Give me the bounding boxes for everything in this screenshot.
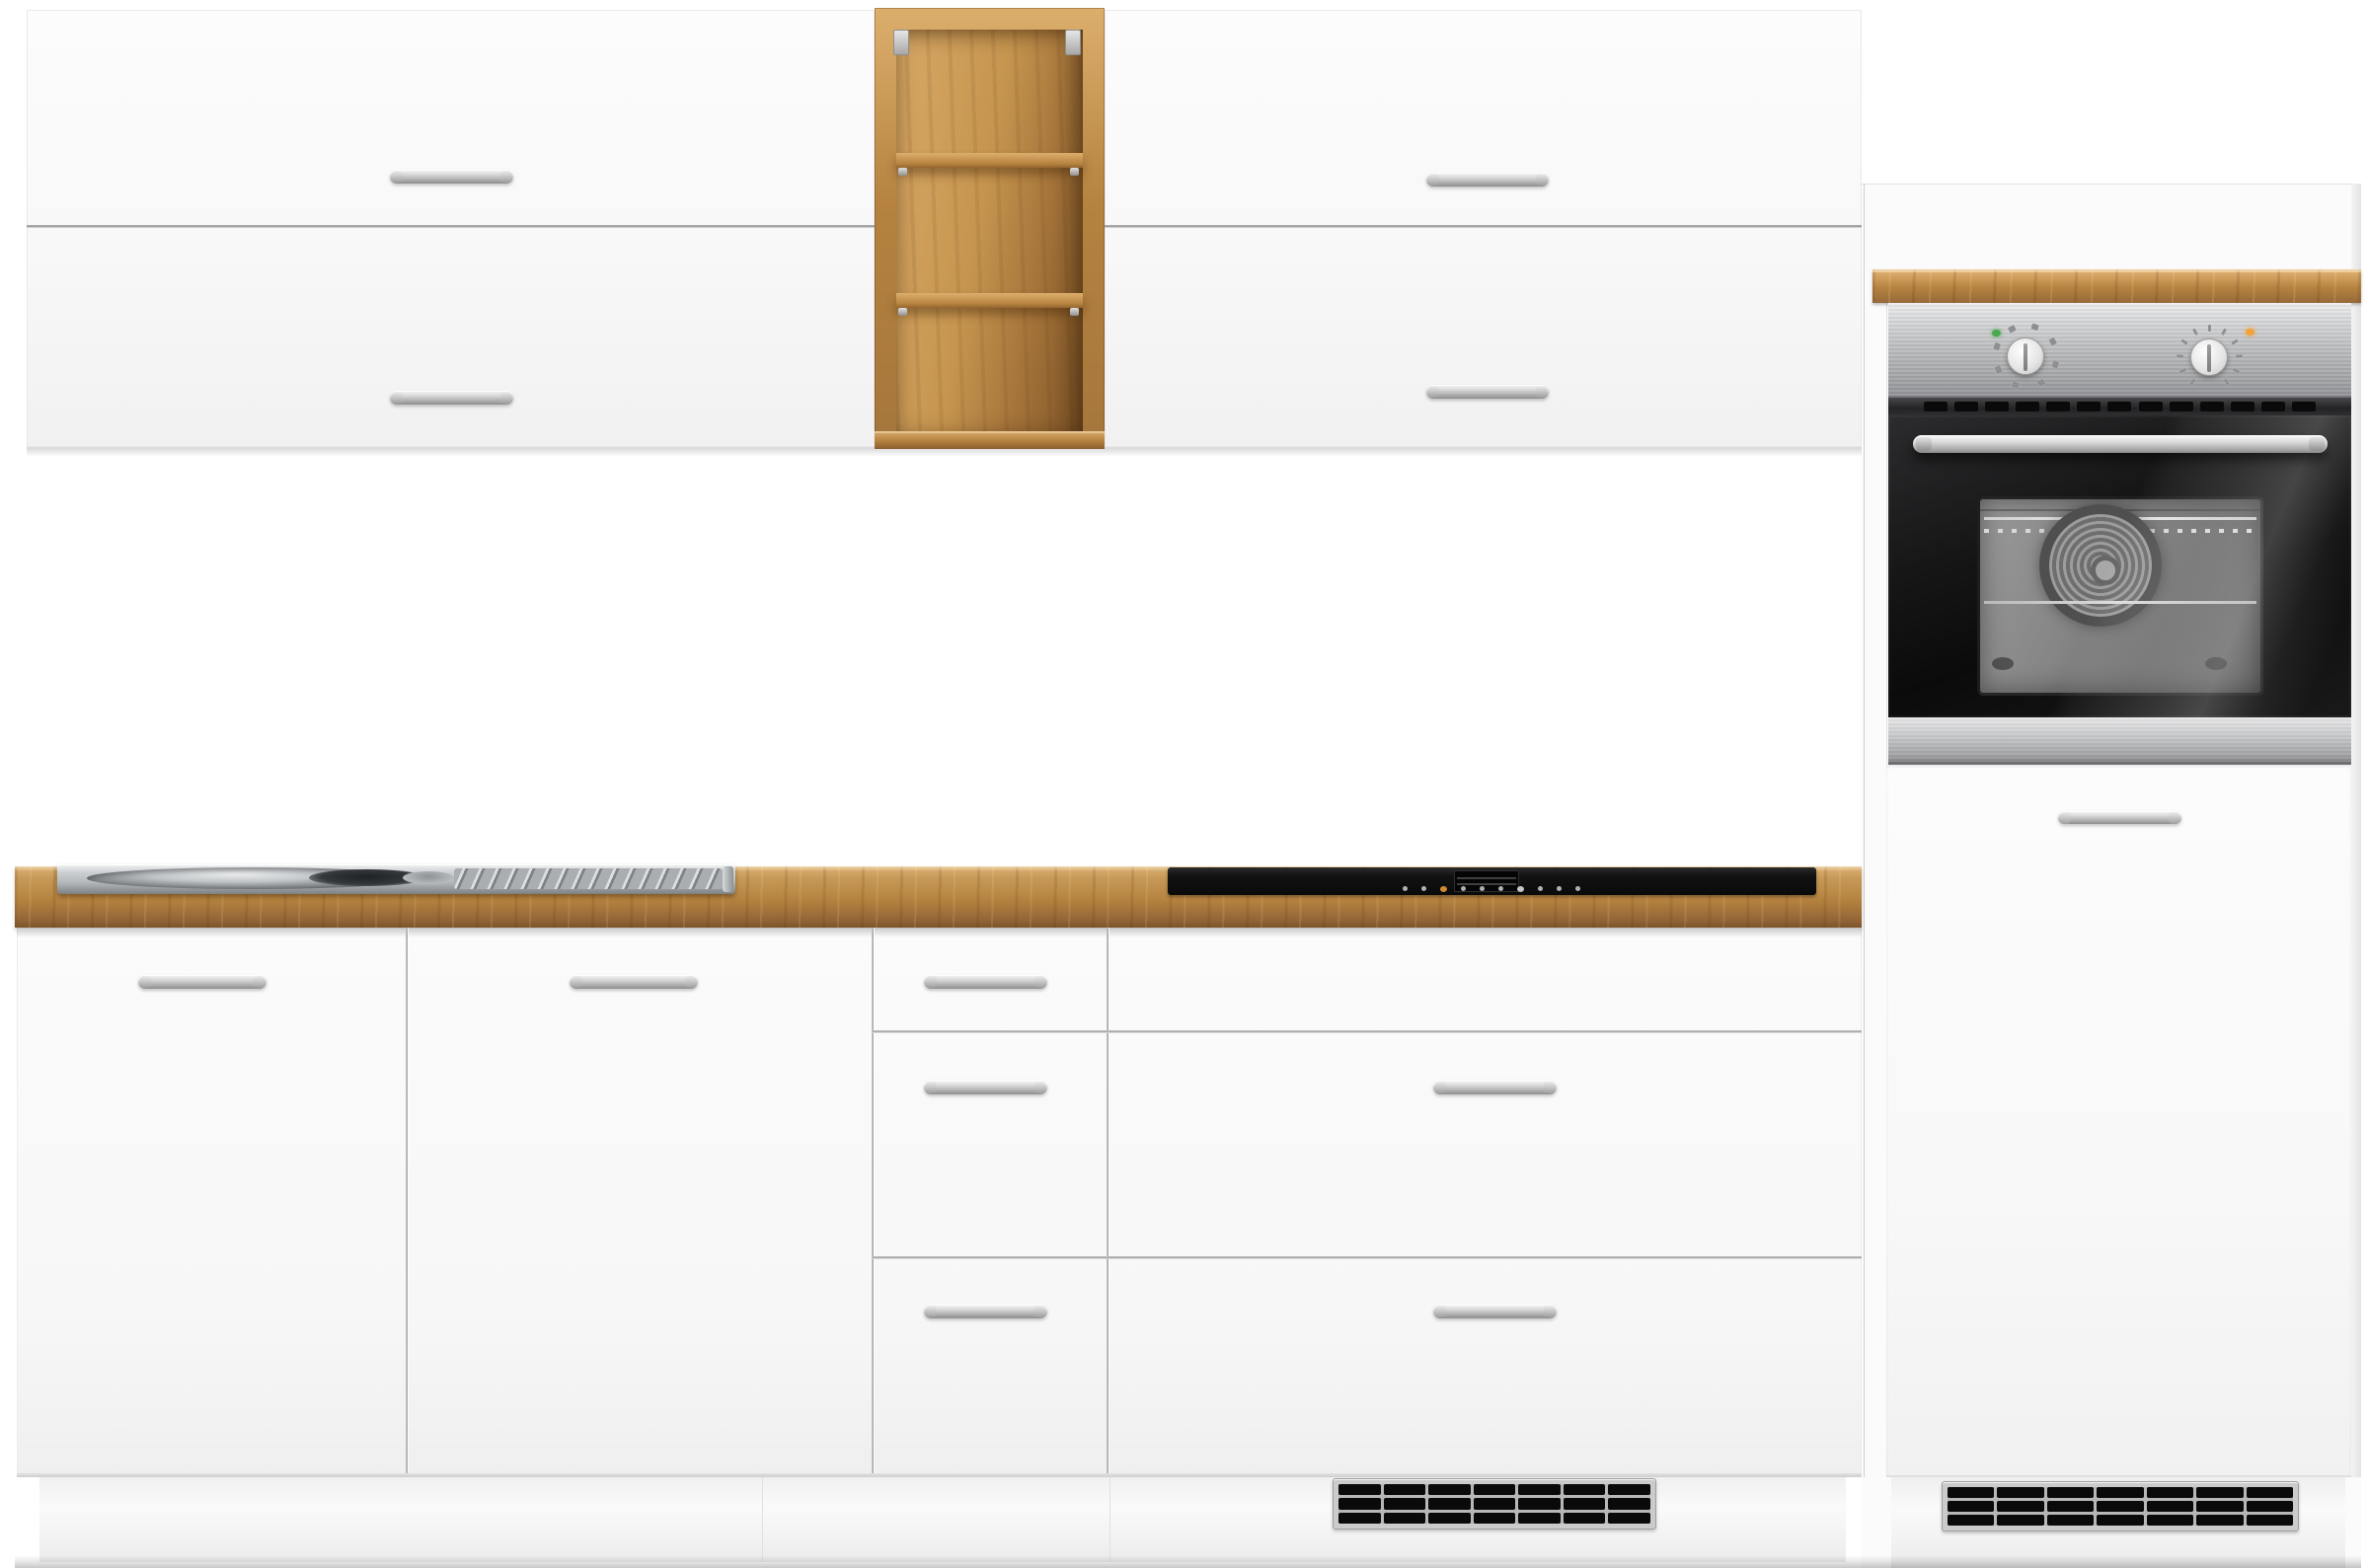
knob-mark — [1993, 342, 2001, 351]
grille-slot — [1518, 1513, 1561, 1524]
grille-slot — [2247, 1501, 2293, 1512]
sink-cabinet-right-door-handle — [570, 975, 698, 989]
ct-dot — [1421, 886, 1426, 891]
open-shelf-unit — [875, 8, 1105, 449]
knob-mark — [1994, 365, 2002, 374]
oven-rack-lower — [1984, 601, 2256, 604]
shelf-clip — [1070, 168, 1079, 176]
plinth-seam — [1109, 1477, 1110, 1562]
grille-slot — [1997, 1487, 2043, 1498]
drawer-divider — [1107, 1256, 1862, 1259]
grille-slot — [2047, 1515, 2094, 1526]
grille-slot — [2147, 1515, 2193, 1526]
faucet-mount-hole — [403, 871, 454, 884]
kitchen-product-photo — [0, 0, 2369, 1568]
base-cabinet-seam — [1107, 928, 1108, 1477]
grille-grid — [1948, 1487, 2293, 1526]
wall-right-lower-handle — [1426, 385, 1549, 399]
grille-slot — [1948, 1487, 1994, 1498]
grille-slot — [1608, 1484, 1650, 1495]
ct-dot — [1557, 886, 1562, 891]
grille-slot — [2196, 1487, 2243, 1498]
vent-slot — [1954, 402, 1978, 411]
shelf-board-upper — [896, 153, 1083, 168]
shelf-bottom-board — [875, 431, 1105, 449]
oven-cavity-bolt — [1992, 657, 2014, 670]
grille-slot — [1338, 1484, 1381, 1495]
wall-left-lower-handle — [390, 391, 513, 405]
grille-slot — [2196, 1515, 2243, 1526]
grille-slot — [1948, 1501, 1994, 1512]
knob-mark — [2178, 367, 2186, 373]
shelf-clip — [898, 308, 907, 316]
vent-slot — [2077, 402, 2101, 411]
sink-cabinet-left-door-handle — [138, 975, 267, 989]
grille-slot — [2097, 1515, 2143, 1526]
grille-slot — [1428, 1513, 1471, 1524]
knob-mark — [2231, 338, 2239, 344]
oven-door-glass — [1888, 415, 2351, 717]
grille-slot — [2047, 1501, 2094, 1512]
grille-slot — [2247, 1487, 2293, 1498]
shelf-mount-bracket-right — [1065, 30, 1081, 55]
wall-cabinet-left-door-seam — [27, 225, 875, 228]
oven-function-knob — [2007, 337, 2044, 375]
grille-slot — [1608, 1498, 1650, 1509]
vent-slot — [2231, 402, 2254, 411]
grille-slot — [1518, 1484, 1561, 1495]
grille-slot — [2247, 1515, 2293, 1526]
grille-slot — [1564, 1498, 1606, 1509]
grille-slot — [2047, 1487, 2094, 1498]
knob-mark — [2036, 378, 2045, 387]
oven-cavity-bolt — [2205, 657, 2227, 670]
shelf-shadow — [875, 449, 1105, 457]
grille-slot — [1997, 1515, 2043, 1526]
grille-slot — [1564, 1513, 1606, 1524]
grille-slot — [1428, 1484, 1471, 1495]
oven-rack-upper — [1984, 517, 2256, 520]
oven-convection-fan — [2039, 504, 2162, 627]
oven-cavity-line — [1980, 509, 2260, 511]
oven-control-panel — [1888, 303, 2351, 398]
wide-upper-drawer-handle — [1433, 1081, 1557, 1094]
tall-unit-left-seam — [1864, 184, 1865, 1477]
knob-mark — [2180, 338, 2188, 344]
ct-dot — [1498, 886, 1503, 891]
heat-indicator-light — [2246, 329, 2254, 336]
power-indicator-light — [1992, 330, 2001, 336]
grille-slot — [2147, 1487, 2193, 1498]
grille-slot — [2196, 1501, 2243, 1512]
under-counter-shadow — [17, 928, 1862, 937]
grille-slot — [1518, 1498, 1561, 1509]
grille-slot — [1564, 1484, 1606, 1495]
tall-unit-right-side — [2351, 184, 2361, 1477]
vent-slot — [1924, 402, 1948, 411]
shelf-interior-back-panel — [896, 30, 1083, 431]
grille-slot — [1474, 1498, 1516, 1509]
vent-slot — [2016, 402, 2039, 411]
vent-slot — [2107, 402, 2131, 411]
oven-door-handle — [1913, 435, 2328, 453]
ventilation-grille-left — [1333, 1478, 1656, 1530]
tall-unit-lower-door — [1886, 765, 2351, 1477]
grille-slot — [1384, 1498, 1426, 1509]
narrow-top-drawer-handle — [924, 975, 1047, 989]
vent-slot — [2170, 402, 2193, 411]
knob-mark — [2208, 325, 2211, 332]
shelf-mount-bracket-left — [893, 30, 909, 55]
knob-mark — [2011, 381, 2020, 389]
wall-cabinet-shadow — [27, 449, 875, 457]
sink-edge-lip — [723, 866, 733, 892]
shelf-clip — [898, 168, 907, 176]
ct-dot — [1517, 886, 1524, 892]
wall-left-upper-handle — [390, 170, 513, 184]
grille-slot — [1997, 1501, 2043, 1512]
knob-mark — [2235, 354, 2242, 357]
base-door-seam — [406, 928, 408, 1477]
tall-unit-wood-trim — [1872, 269, 2361, 303]
grille-slot — [1474, 1513, 1516, 1524]
narrow-bottom-drawer-handle — [924, 1305, 1047, 1318]
grille-slot — [1384, 1513, 1426, 1524]
oven-bottom-trim — [1888, 717, 2351, 765]
grille-slot — [1608, 1513, 1650, 1524]
ct-dot — [1461, 886, 1466, 891]
knob-mark — [2048, 337, 2057, 346]
grille-slot — [1428, 1498, 1471, 1509]
knob-mark — [2007, 325, 2016, 334]
shelf-board-lower — [896, 293, 1083, 308]
vent-slot — [2261, 402, 2285, 411]
drawer-divider — [872, 1256, 1108, 1259]
oven-vent-row — [1888, 398, 2351, 415]
knob-mark — [2223, 378, 2229, 385]
vent-slot — [1985, 402, 2009, 411]
grille-slot — [2097, 1487, 2143, 1498]
grille-slot — [1338, 1513, 1381, 1524]
ventilation-grille-right — [1942, 1481, 2299, 1531]
grille-slot — [2147, 1501, 2193, 1512]
base-cabinet-run — [17, 928, 1862, 1477]
wide-lower-drawer-handle — [1433, 1305, 1557, 1318]
ct-dot — [1403, 886, 1408, 891]
grille-slot — [2097, 1501, 2143, 1512]
grille-grid — [1338, 1484, 1650, 1524]
ct-dot — [1440, 886, 1447, 892]
wall-cabinet-shadow — [1105, 449, 1862, 457]
shelf-clip — [1070, 308, 1079, 316]
wall-cabinet-left — [27, 10, 875, 449]
drawer-divider — [1107, 1030, 1862, 1033]
wall-cabinet-right-door-seam — [1105, 225, 1862, 228]
knob-mark — [2189, 378, 2195, 385]
grille-slot — [1474, 1484, 1516, 1495]
cooktop — [1168, 867, 1816, 895]
inset-sink — [57, 864, 735, 894]
oven-door-window — [1977, 496, 2263, 696]
narrow-middle-drawer-handle — [924, 1081, 1047, 1094]
plinth-seam — [762, 1477, 763, 1562]
sink-drainboard — [454, 868, 723, 889]
tall-oven-unit — [1862, 184, 2361, 1568]
wall-cabinet-right — [1105, 10, 1862, 449]
knob-mark — [2221, 328, 2227, 336]
floor-contact-shadow — [15, 1555, 2361, 1568]
vent-slot — [2046, 402, 2070, 411]
wall-right-upper-handle — [1426, 173, 1549, 187]
knob-mark — [2030, 323, 2038, 331]
grille-slot — [1338, 1498, 1381, 1509]
ct-dot — [1538, 886, 1543, 891]
tall-unit-door-handle — [2058, 811, 2181, 824]
vent-slot — [2292, 402, 2316, 411]
grille-slot — [1384, 1484, 1426, 1495]
ct-dot — [1575, 886, 1580, 891]
oven-temperature-knob — [2190, 338, 2228, 376]
knob-mark — [2232, 367, 2240, 373]
knob-mark — [2191, 328, 2197, 336]
knob-mark — [2176, 354, 2182, 357]
knob-mark — [2051, 360, 2059, 368]
vent-slot — [2139, 402, 2163, 411]
oven-rack-rail-dots — [1984, 529, 2256, 533]
vent-slot — [2200, 402, 2224, 411]
grille-slot — [1948, 1515, 1994, 1526]
base-cabinet-seam — [872, 928, 874, 1477]
drawer-divider — [872, 1030, 1108, 1033]
cooktop-touch-controls — [1403, 884, 1580, 893]
ct-dot — [1480, 886, 1485, 891]
built-in-oven — [1888, 398, 2351, 765]
